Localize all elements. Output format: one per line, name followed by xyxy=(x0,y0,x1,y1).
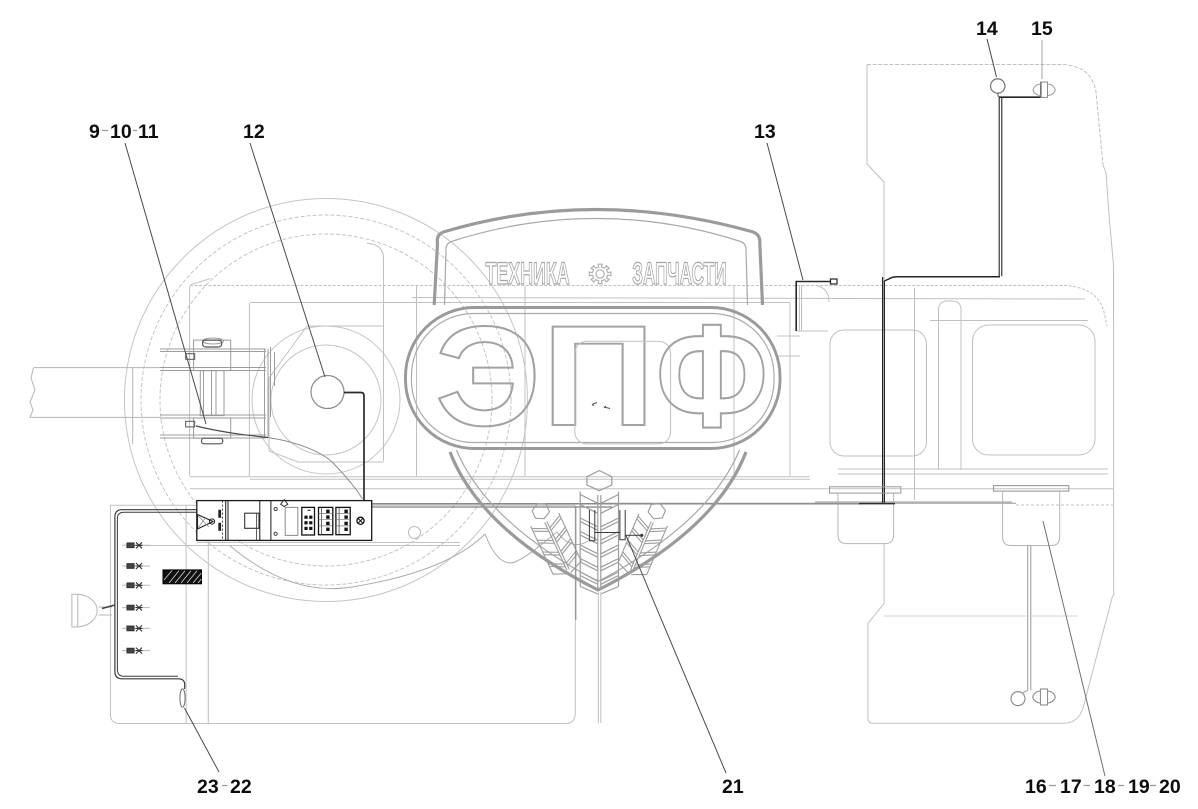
svg-text:23: 23 xyxy=(197,776,219,798)
svg-text:Э: Э xyxy=(435,297,540,455)
svg-text:12: 12 xyxy=(243,121,265,143)
svg-text:22: 22 xyxy=(230,776,252,798)
svg-text:13: 13 xyxy=(754,121,776,143)
svg-text:20: 20 xyxy=(1159,776,1181,798)
svg-text:14: 14 xyxy=(976,18,998,40)
svg-text:ТЕХНИКА: ТЕХНИКА xyxy=(486,256,570,291)
svg-text:Ф: Ф xyxy=(656,293,769,458)
svg-text:10: 10 xyxy=(110,121,132,143)
svg-text:ЗАПЧАСТИ: ЗАПЧАСТИ xyxy=(632,256,726,291)
svg-text:П: П xyxy=(542,295,655,455)
svg-text:16: 16 xyxy=(1025,776,1047,798)
svg-text:15: 15 xyxy=(1031,18,1053,40)
svg-text:18: 18 xyxy=(1094,776,1116,798)
svg-text:9: 9 xyxy=(89,121,100,143)
svg-text:17: 17 xyxy=(1060,776,1082,798)
svg-text:11: 11 xyxy=(138,121,159,143)
svg-text:19: 19 xyxy=(1128,776,1150,798)
svg-text:21: 21 xyxy=(722,776,744,798)
